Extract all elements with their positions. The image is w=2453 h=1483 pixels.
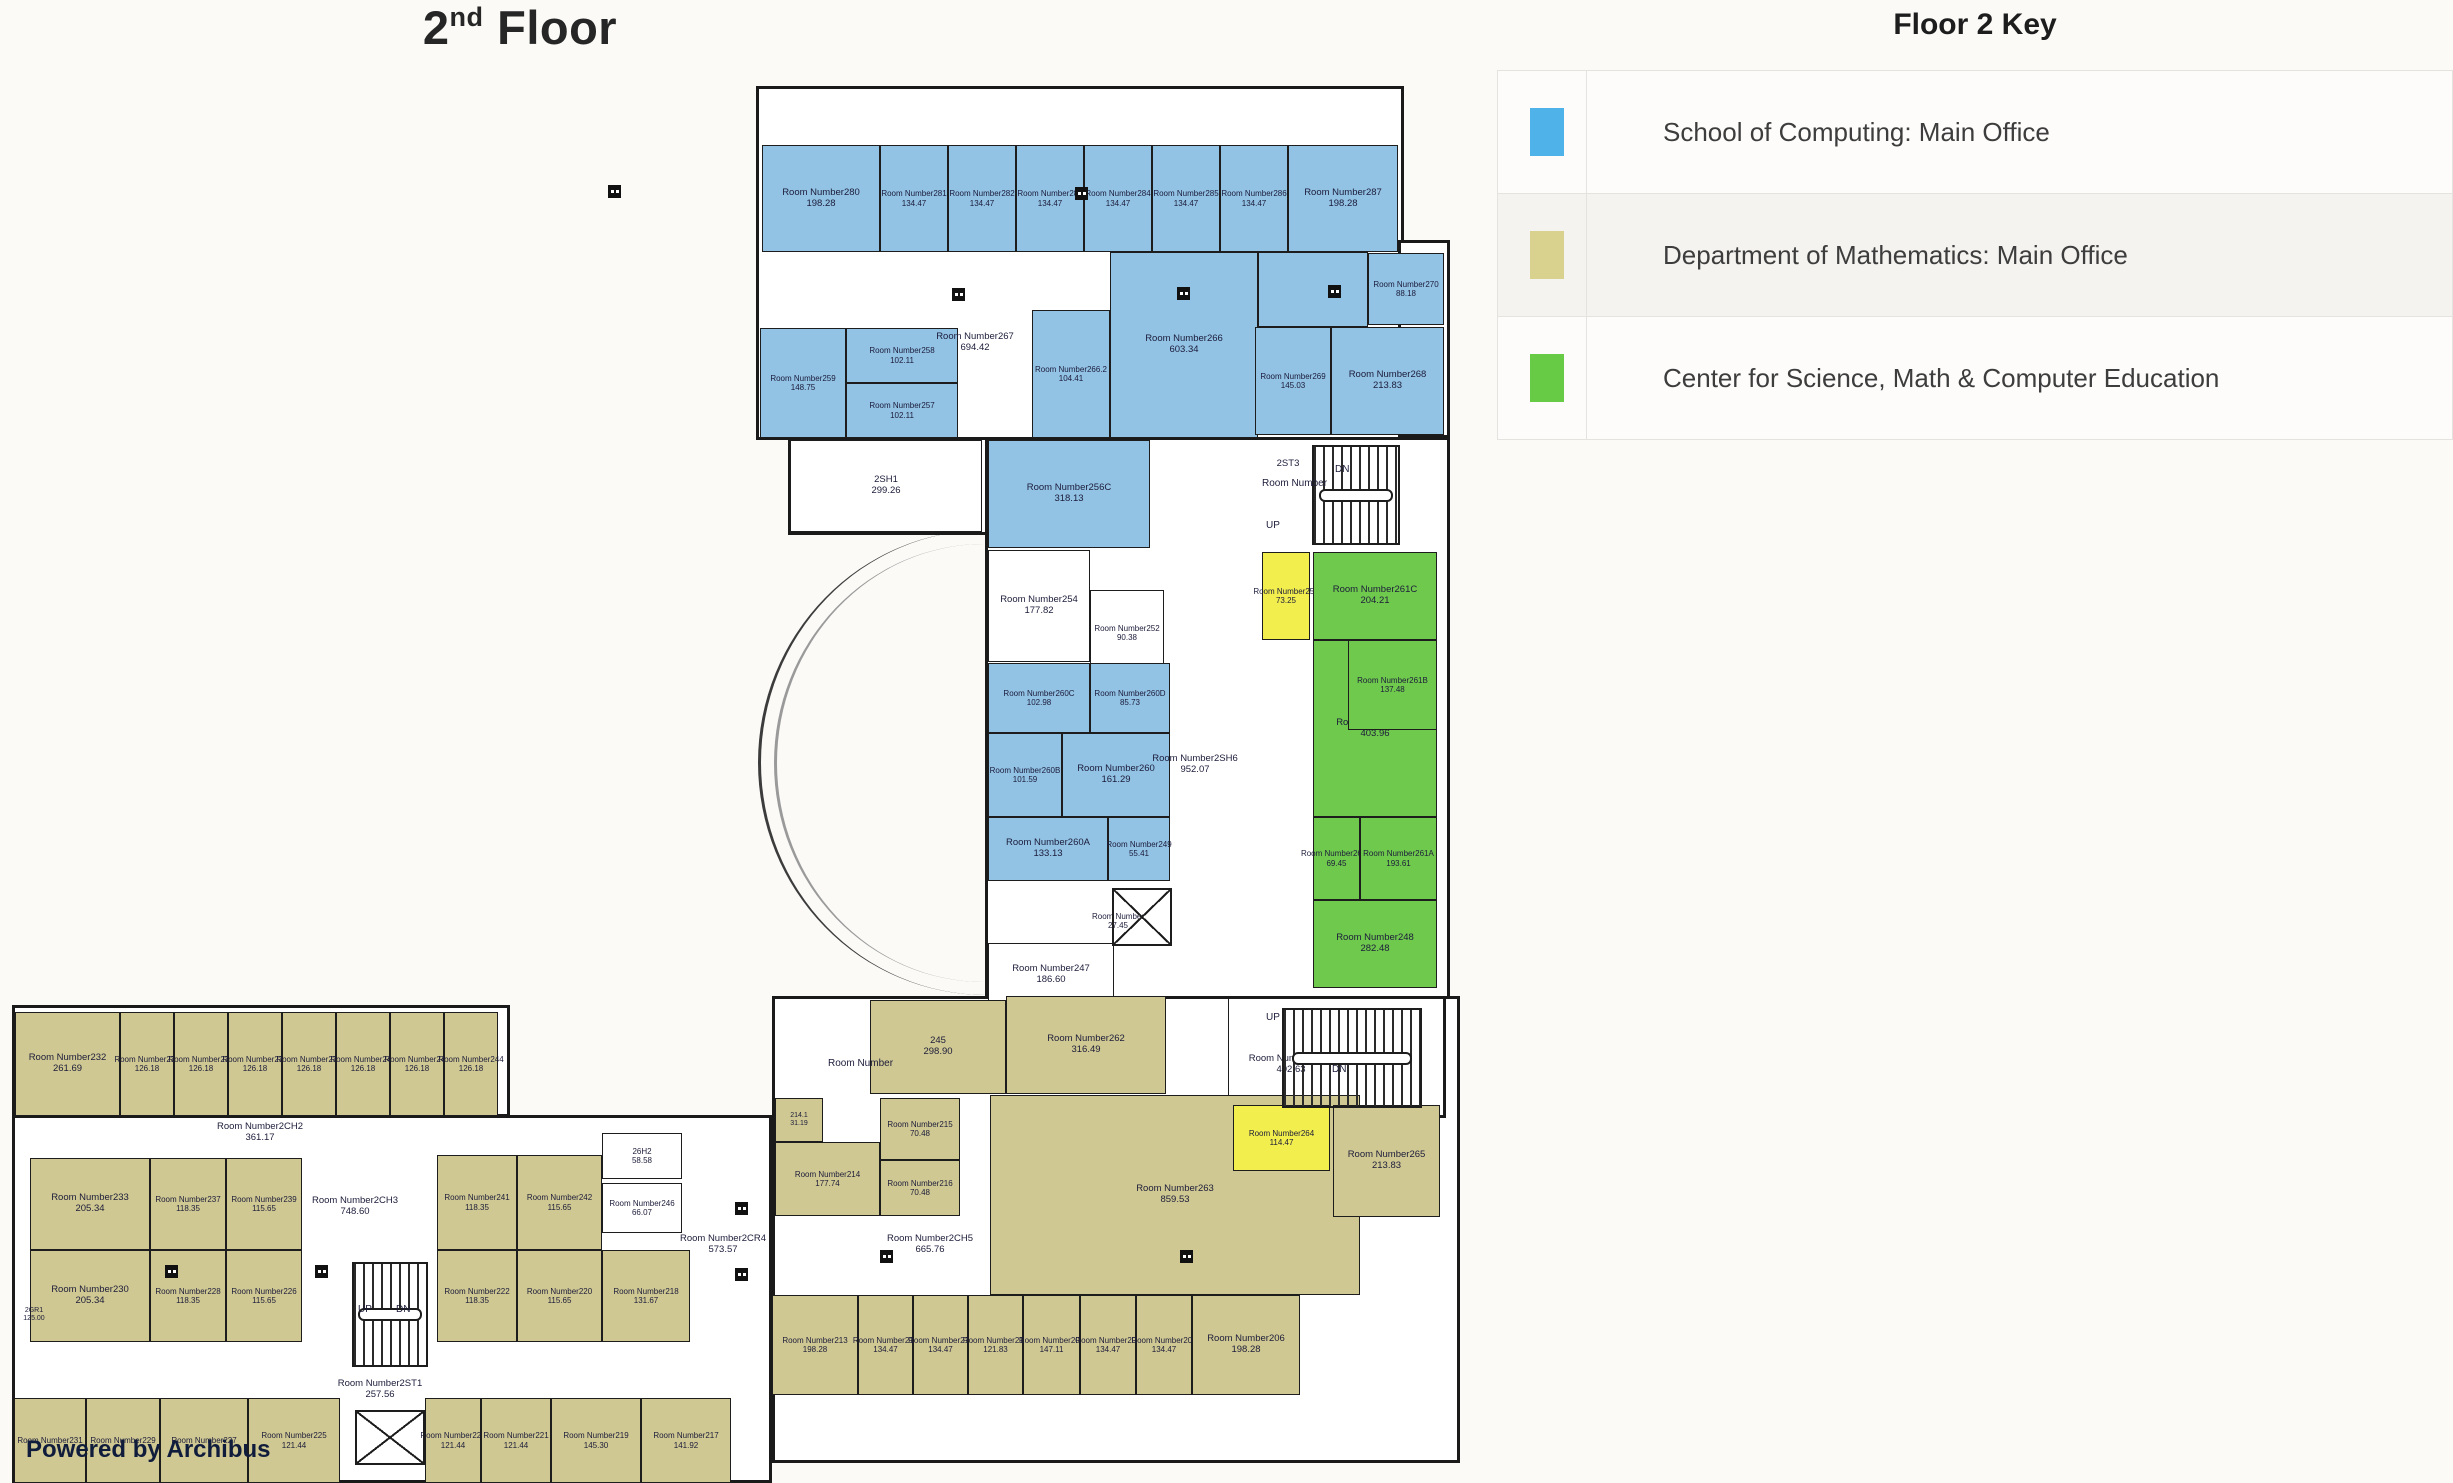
room-220[interactable]: Room Number220115.65 [517, 1250, 602, 1342]
room-259[interactable]: Room Number259148.75 [760, 328, 846, 438]
plan-text: UP [358, 1304, 372, 1315]
room-256C[interactable]: Room Number256C318.13 [988, 440, 1150, 548]
electrical-symbol [1180, 1250, 1193, 1263]
plan-text: DN [1335, 464, 1349, 475]
room-2SH6[interactable]: Room Number2SH6952.07 [1152, 750, 1238, 780]
room-261D[interactable]: Room Number261D69.45 [1313, 817, 1360, 900]
room-283[interactable]: Room Number283134.47 [1016, 145, 1084, 252]
room-246[interactable]: Room Number24666.07 [602, 1183, 682, 1233]
plan-text: Room Number [1262, 478, 1327, 489]
room-2ST3[interactable]: 2ST3 [1268, 452, 1308, 476]
room-242[interactable]: Room Number242115.65 [517, 1155, 602, 1250]
room-218[interactable]: Room Number218131.67 [602, 1250, 690, 1342]
electrical-symbol [880, 1250, 893, 1263]
room-269[interactable]: Room Number269145.03 [1255, 327, 1331, 435]
room-214.1[interactable]: 214.131.19 [775, 1098, 823, 1142]
room-210[interactable]: Room Number210121.83 [968, 1295, 1023, 1395]
legend-panel: Floor 2 Key School of Computing: Main Of… [1497, 0, 2453, 440]
room-212[interactable]: Room Number212134.47 [858, 1295, 913, 1395]
room-287[interactable]: Room Number287198.28 [1288, 145, 1398, 252]
room-266[interactable]: Room Number266603.34 [1110, 252, 1258, 438]
room-236[interactable]: Room Number236126.18 [228, 1012, 282, 1116]
legend-swatch-cell [1498, 71, 1587, 193]
elevator-shaft [1112, 888, 1172, 946]
floor-plan[interactable]: Room Number280198.28Room Number281134.47… [0, 0, 1497, 1483]
room-245[interactable]: 245298.90 [870, 1000, 1006, 1094]
electrical-symbol [165, 1265, 178, 1278]
room-2GR1[interactable]: 2GR1125.00 [12, 1300, 56, 1330]
room-261C[interactable]: Room Number261C204.21 [1313, 552, 1437, 640]
room-209[interactable]: Room Number209147.11 [1023, 1295, 1080, 1395]
legend-swatch-cell [1498, 317, 1587, 439]
electrical-symbol [608, 185, 621, 198]
room-213[interactable]: Room Number213198.28 [772, 1295, 858, 1395]
room-237[interactable]: Room Number237118.35 [150, 1158, 226, 1250]
room-260D[interactable]: Room Number260D85.73 [1090, 663, 1170, 733]
room-261B[interactable]: Room Number261B137.48 [1348, 640, 1437, 730]
electrical-symbol [315, 1265, 328, 1278]
room-254[interactable]: Room Number254177.82 [988, 550, 1090, 662]
room-228[interactable]: Room Number228118.35 [150, 1250, 226, 1342]
room-265[interactable]: Room Number265213.83 [1333, 1105, 1440, 1217]
legend-title: Floor 2 Key [1497, 8, 2453, 42]
legend-row: Department of Mathematics: Main Office [1498, 194, 2452, 317]
legend-label: School of Computing: Main Office [1587, 117, 2050, 148]
plan-text: DN [396, 1304, 410, 1315]
room-281[interactable]: Room Number281134.47 [880, 145, 948, 252]
plan-text: UP [1266, 1012, 1280, 1023]
stairs [1312, 445, 1400, 545]
room-2SH1[interactable]: 2SH1299.26 [790, 440, 982, 532]
room-223[interactable]: Room Number223121.44 [425, 1398, 481, 1483]
room-268[interactable]: Room Number268213.83 [1331, 327, 1444, 435]
room-243[interactable]: Room Number243126.18 [390, 1012, 444, 1116]
room-208[interactable]: Room Number208134.47 [1080, 1295, 1136, 1395]
room-280[interactable]: Room Number280198.28 [762, 145, 880, 252]
room-219[interactable]: Room Number219145.30 [551, 1398, 641, 1483]
room-2ST1[interactable]: Room Number2ST1257.56 [330, 1375, 430, 1405]
room-264[interactable]: Room Number264114.47 [1233, 1105, 1330, 1171]
room-214[interactable]: Room Number214177.74 [775, 1142, 880, 1216]
room-207[interactable]: Room Number207134.47 [1136, 1295, 1192, 1395]
room-238[interactable]: Room Number238126.18 [282, 1012, 336, 1116]
legend-row: Center for Science, Math & Computer Educ… [1498, 317, 2452, 439]
room-2CR4[interactable]: Room Number2CR4573.57 [680, 1228, 766, 1262]
room-2CH3[interactable]: Room Number2CH3748.60 [300, 1190, 410, 1224]
room-267[interactable]: Room Number267694.42 [930, 318, 1020, 368]
room-261A[interactable]: Room Number261A193.61 [1360, 817, 1437, 900]
stairs [1282, 1008, 1422, 1108]
room-262[interactable]: Room Number262316.49 [1006, 996, 1166, 1094]
room-211[interactable]: Room Number211134.47 [913, 1295, 968, 1395]
room-2CH2[interactable]: Room Number2CH2361.17 [200, 1116, 320, 1150]
electrical-symbol [1177, 287, 1190, 300]
legend-swatch-cell [1498, 194, 1587, 316]
powered-by-archibus: Powered by Archibus [26, 1436, 271, 1464]
room-232[interactable]: Room Number232261.69 [15, 1012, 120, 1116]
room-216[interactable]: Room Number21670.48 [880, 1160, 960, 1216]
room-217[interactable]: Room Number217141.92 [641, 1398, 731, 1483]
legend-color-swatch [1530, 354, 1564, 402]
legend-table: School of Computing: Main OfficeDepartme… [1497, 70, 2453, 440]
electrical-symbol [1328, 285, 1341, 298]
electrical-symbol [952, 288, 965, 301]
room-253[interactable]: Room Number25373.25 [1262, 552, 1310, 640]
room-241[interactable]: Room Number241118.35 [437, 1155, 517, 1250]
page: 2nd Floor Room Number280198.28Room Numbe… [0, 0, 2453, 1483]
room-26H2[interactable]: 26H258.58 [602, 1133, 682, 1179]
room-239[interactable]: Room Number239115.65 [226, 1158, 302, 1250]
room-221[interactable]: Room Number221121.44 [481, 1398, 551, 1483]
room-206[interactable]: Room Number206198.28 [1192, 1295, 1300, 1395]
room-257[interactable]: Room Number257102.11 [846, 383, 958, 438]
plan-text: DN [1332, 1064, 1346, 1075]
room-284[interactable]: Room Number284134.47 [1084, 145, 1152, 252]
room-248[interactable]: Room Number248282.48 [1313, 900, 1437, 988]
room-282[interactable]: Room Number282134.47 [948, 145, 1016, 252]
electrical-symbol [1075, 187, 1088, 200]
room-233[interactable]: Room Number233205.34 [30, 1158, 150, 1250]
room-2CH5[interactable]: Room Number2CH5665.76 [880, 1228, 980, 1262]
room-260B[interactable]: Room Number260B101.59 [988, 733, 1062, 817]
plan-text: UP [1266, 520, 1280, 531]
room-249[interactable]: Room Number24955.41 [1108, 817, 1170, 881]
room-234[interactable]: Room Number234126.18 [120, 1012, 174, 1116]
elevator-shaft [355, 1410, 425, 1465]
plan-text: Room Number [828, 1058, 893, 1069]
electrical-symbol [735, 1268, 748, 1281]
legend-row: School of Computing: Main Office [1498, 71, 2452, 194]
room-285[interactable]: Room Number285134.47 [1152, 145, 1220, 252]
room-215[interactable]: Room Number21570.48 [880, 1098, 960, 1160]
room-unlabeled[interactable] [1258, 252, 1368, 327]
room-226[interactable]: Room Number226115.65 [226, 1250, 302, 1342]
room-286[interactable]: Room Number286134.47 [1220, 145, 1288, 252]
legend-label: Center for Science, Math & Computer Educ… [1587, 363, 2219, 394]
electrical-symbol [735, 1202, 748, 1215]
room-240[interactable]: Room Number240126.18 [336, 1012, 390, 1116]
legend-color-swatch [1530, 108, 1564, 156]
legend-color-swatch [1530, 231, 1564, 279]
room-260A[interactable]: Room Number260A133.13 [988, 817, 1108, 881]
room-270[interactable]: Room Number27088.18 [1368, 253, 1444, 325]
atrium-arc-inner [774, 544, 984, 982]
room-222[interactable]: Room Number222118.35 [437, 1250, 517, 1342]
room-235[interactable]: Room Number235126.18 [174, 1012, 228, 1116]
room-266.2[interactable]: Room Number266.2104.41 [1032, 310, 1110, 438]
room-260C[interactable]: Room Number260C102.98 [988, 663, 1090, 733]
room-244[interactable]: Room Number244126.18 [444, 1012, 498, 1116]
legend-label: Department of Mathematics: Main Office [1587, 240, 2128, 271]
